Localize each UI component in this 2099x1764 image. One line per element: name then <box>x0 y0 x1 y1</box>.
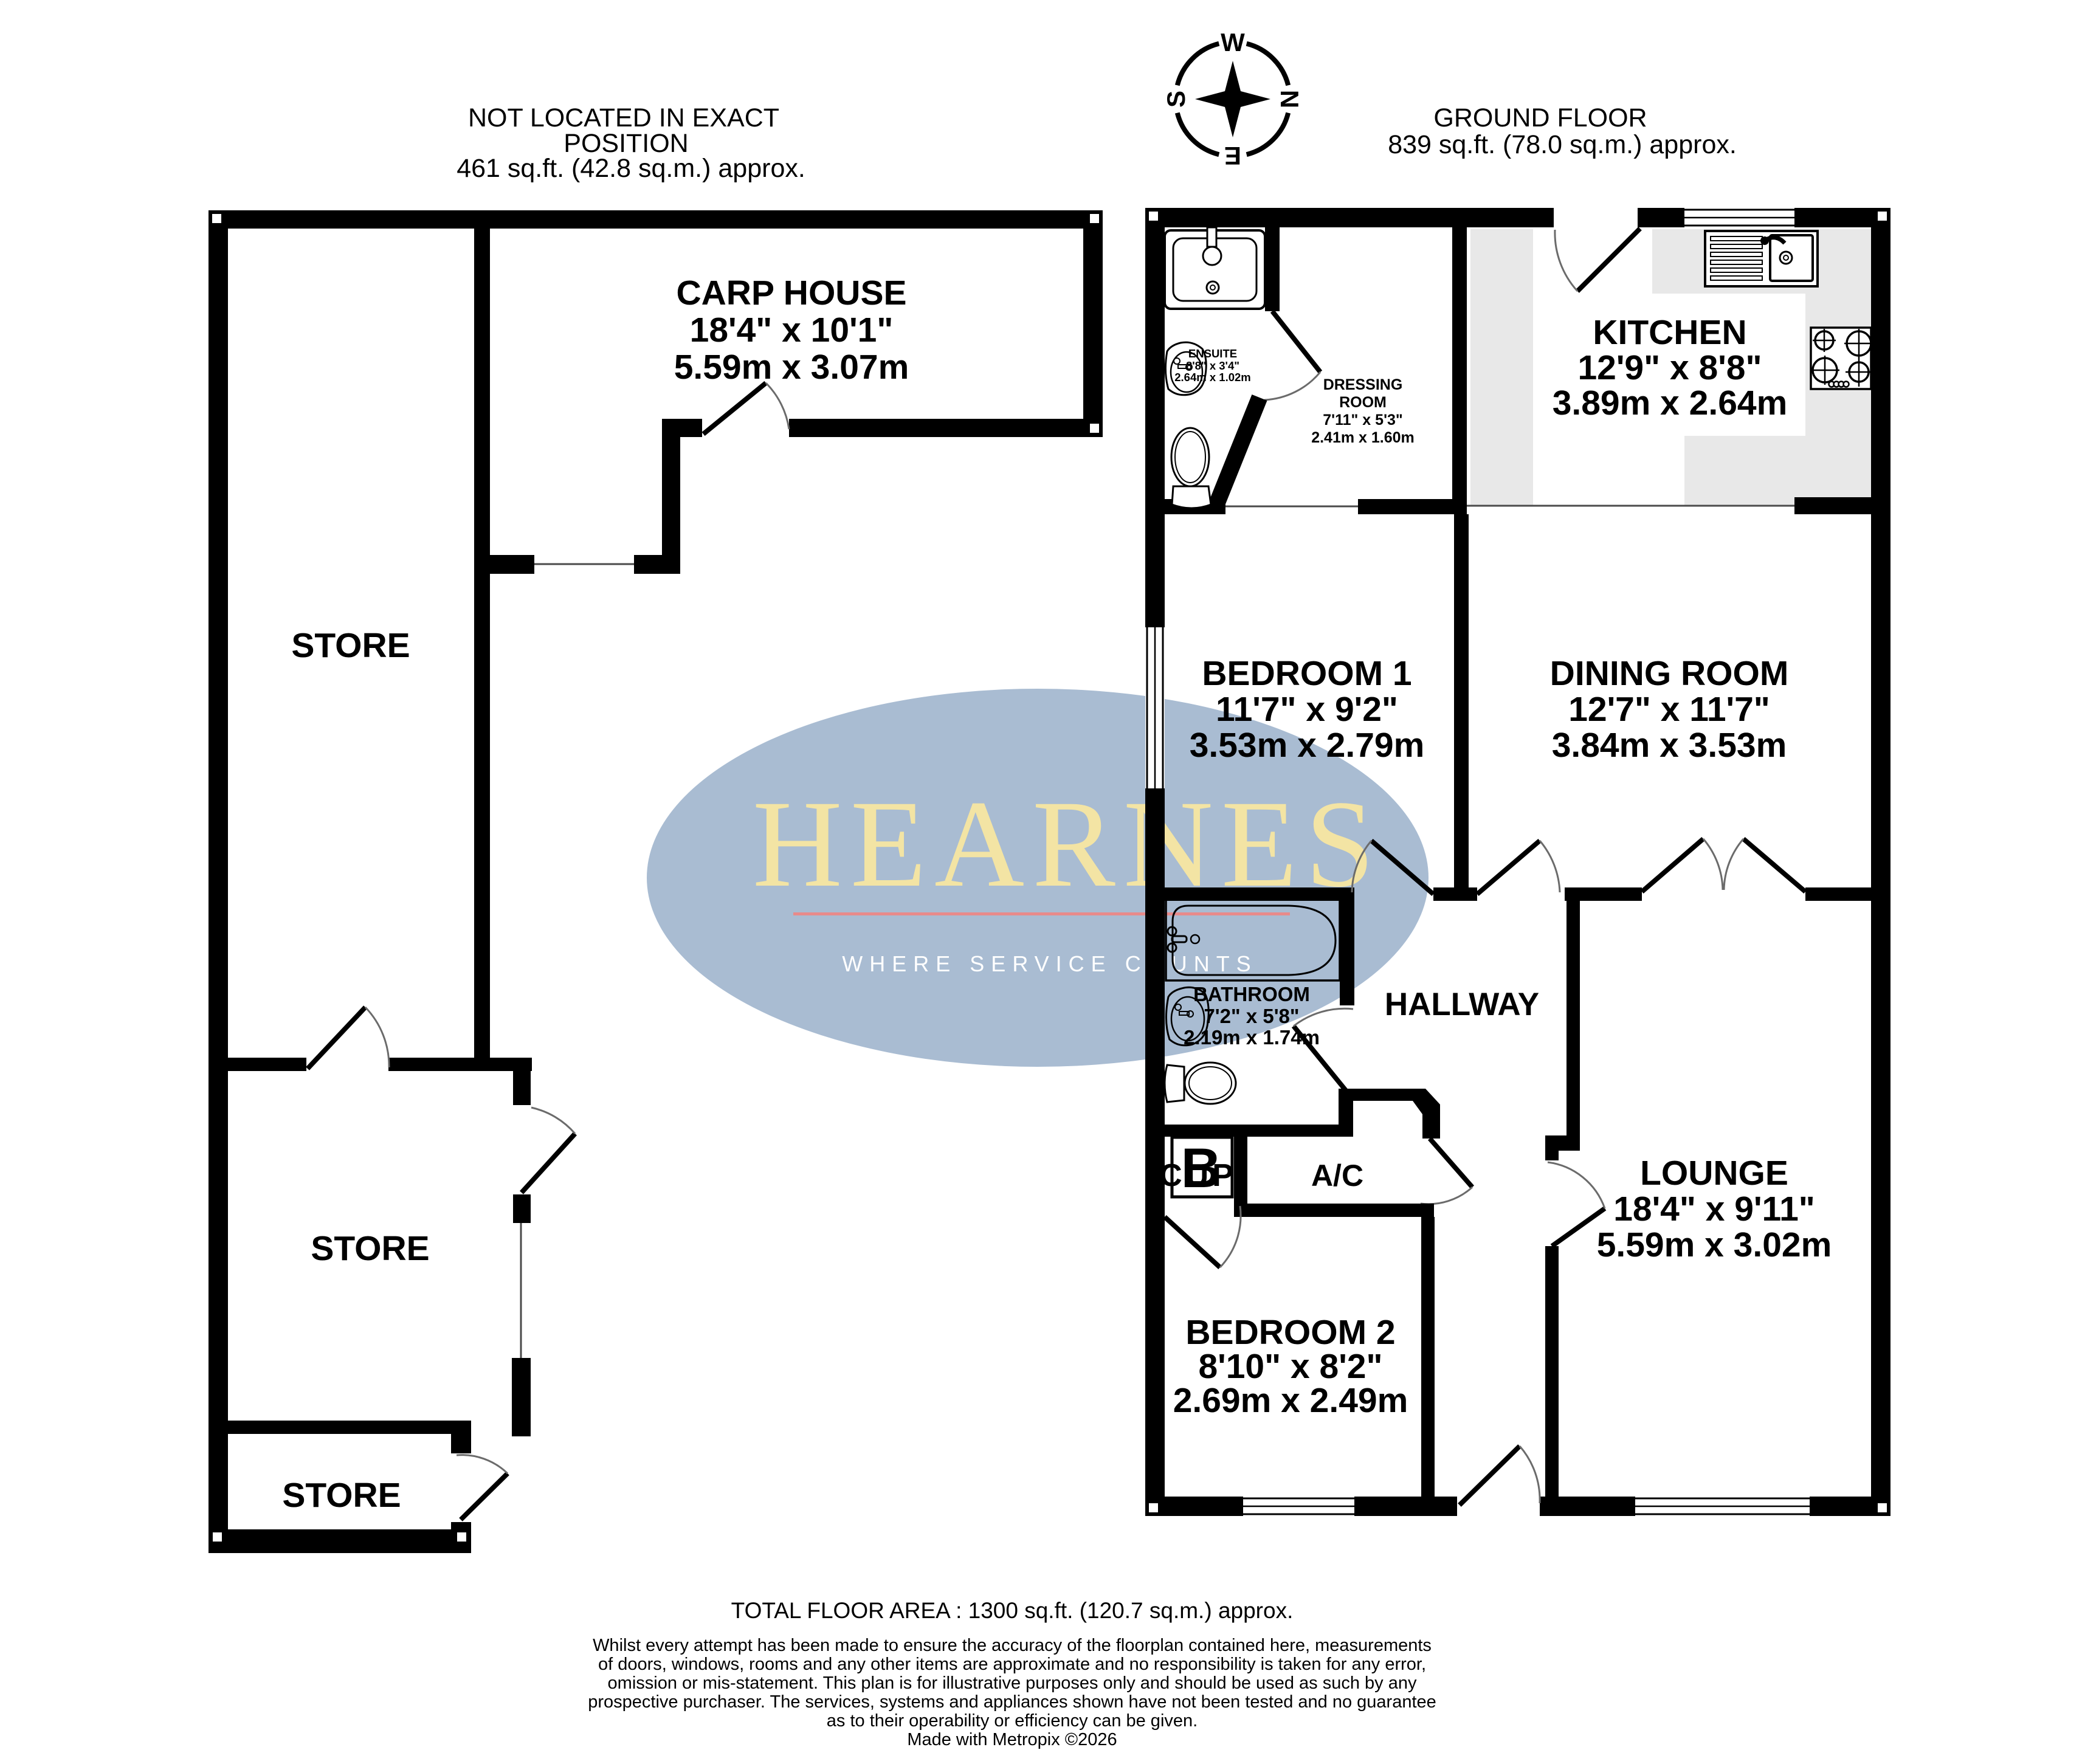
svg-text:7'2" x 5'8": 7'2" x 5'8" <box>1204 1005 1299 1027</box>
svg-text:5.59m x 3.07m: 5.59m x 3.07m <box>674 348 909 387</box>
svg-text:as to their operability or eff: as to their operability or efficiency ca… <box>827 1711 1198 1731</box>
svg-text:2.64m x 1.02m: 2.64m x 1.02m <box>1174 371 1250 384</box>
svg-text:KITCHEN: KITCHEN <box>1593 313 1746 352</box>
svg-text:STORE: STORE <box>291 626 410 665</box>
svg-text:18'4" x 9'11": 18'4" x 9'11" <box>1613 1190 1815 1228</box>
svg-text:2.41m x 1.60m: 2.41m x 1.60m <box>1311 429 1415 446</box>
svg-text:A/C: A/C <box>1311 1159 1363 1193</box>
svg-text:prospective purchaser. The ser: prospective purchaser. The services, sys… <box>588 1692 1436 1712</box>
svg-text:7'11" x 5'3": 7'11" x 5'3" <box>1323 412 1403 429</box>
svg-text:CUP: CUP <box>1159 1158 1237 1193</box>
svg-text:ENSUITE: ENSUITE <box>1188 347 1237 360</box>
svg-text:STORE: STORE <box>311 1229 429 1268</box>
svg-text:3.89m x 2.64m: 3.89m x 2.64m <box>1553 384 1788 422</box>
svg-text:TOTAL FLOOR AREA : 1300 sq.ft.: TOTAL FLOOR AREA : 1300 sq.ft. (120.7 sq… <box>731 1598 1294 1623</box>
svg-text:CARP HOUSE: CARP HOUSE <box>676 274 906 312</box>
svg-text:ROOM: ROOM <box>1339 394 1387 411</box>
svg-text:5.59m x 3.02m: 5.59m x 3.02m <box>1597 1225 1832 1264</box>
svg-text:BEDROOM 1: BEDROOM 1 <box>1202 654 1411 693</box>
svg-text:2.19m x 1.74m: 2.19m x 1.74m <box>1184 1026 1320 1049</box>
svg-text:BATHROOM: BATHROOM <box>1193 983 1310 1005</box>
svg-text:3.53m x 2.79m: 3.53m x 2.79m <box>1190 726 1425 765</box>
svg-text:3.84m x 3.53m: 3.84m x 3.53m <box>1552 726 1787 765</box>
svg-text:omission or mis-statement. Thi: omission or mis-statement. This plan is … <box>608 1673 1417 1693</box>
svg-text:461 sq.ft. (42.8 sq.m.) approx: 461 sq.ft. (42.8 sq.m.) approx. <box>457 154 805 183</box>
svg-text:W: W <box>1221 28 1245 57</box>
svg-text:GROUND FLOOR: GROUND FLOOR <box>1433 103 1647 133</box>
svg-text:DRESSING: DRESSING <box>1323 376 1403 393</box>
svg-text:18'4" x 10'1": 18'4" x 10'1" <box>690 311 894 350</box>
svg-text:WHERE SERVICE COUNTS: WHERE SERVICE COUNTS <box>842 951 1257 976</box>
svg-text:DINING ROOM: DINING ROOM <box>1550 654 1789 693</box>
svg-text:839 sq.ft. (78.0 sq.m.) approx: 839 sq.ft. (78.0 sq.m.) approx. <box>1388 130 1737 159</box>
svg-text:2.69m x 2.49m: 2.69m x 2.49m <box>1173 1381 1408 1420</box>
svg-text:of doors, windows, rooms and a: of doors, windows, rooms and any other i… <box>598 1655 1426 1674</box>
svg-text:Made with Metropix ©2026: Made with Metropix ©2026 <box>907 1730 1117 1749</box>
svg-text:S: S <box>1162 91 1190 108</box>
svg-text:STORE: STORE <box>282 1476 401 1515</box>
svg-text:LOUNGE: LOUNGE <box>1640 1154 1788 1193</box>
svg-text:HALLWAY: HALLWAY <box>1385 987 1539 1022</box>
svg-text:NOT LOCATED IN EXACT: NOT LOCATED IN EXACT <box>468 103 779 133</box>
svg-text:12'7" x 11'7": 12'7" x 11'7" <box>1568 690 1770 729</box>
svg-text:12'9" x 8'8": 12'9" x 8'8" <box>1577 348 1762 387</box>
svg-text:11'7" x 9'2": 11'7" x 9'2" <box>1216 690 1398 729</box>
svg-text:Whilst every attempt has been: Whilst every attempt has been made to en… <box>593 1636 1432 1655</box>
svg-text:BEDROOM 2: BEDROOM 2 <box>1185 1313 1395 1352</box>
svg-text:E: E <box>1224 142 1241 170</box>
svg-text:8'8" x 3'4": 8'8" x 3'4" <box>1186 359 1239 372</box>
svg-text:N: N <box>1275 90 1304 108</box>
svg-text:8'10" x 8'2": 8'10" x 8'2" <box>1198 1347 1382 1386</box>
